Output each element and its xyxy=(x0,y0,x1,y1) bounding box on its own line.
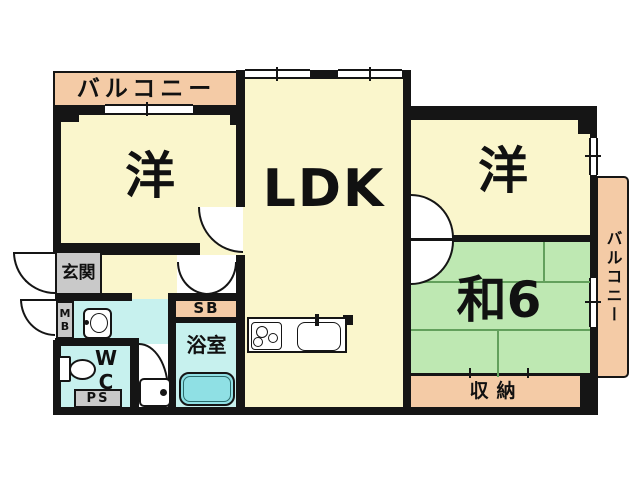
balcony-top-label: バルコニー xyxy=(77,78,217,101)
faucet-icon xyxy=(315,314,319,326)
window-tick xyxy=(146,102,148,116)
wall xyxy=(176,317,237,323)
wall xyxy=(53,407,598,415)
wall xyxy=(55,105,107,115)
toilet-label: WC xyxy=(92,345,120,395)
sliding-door-mark xyxy=(469,368,471,378)
sliding-door-mark xyxy=(527,368,529,378)
storage-label: 収納 xyxy=(411,378,582,404)
wall xyxy=(130,338,139,407)
balcony-right-label: バルコニー xyxy=(605,230,621,325)
bathroom-label: 浴室 xyxy=(176,331,237,359)
room-label-western-left: 洋 xyxy=(100,147,200,205)
wall xyxy=(236,255,245,407)
entrance-box: 玄関 xyxy=(55,251,102,295)
room-label-western-right: 洋 xyxy=(453,142,553,200)
meter-box: MB xyxy=(56,301,74,339)
room-ldk-floor xyxy=(236,70,411,415)
balcony-right: バルコニー xyxy=(596,176,629,378)
wall xyxy=(590,327,597,377)
kitchen-sink-icon xyxy=(297,322,341,351)
stove-burner-icon xyxy=(253,337,263,347)
wall xyxy=(403,70,411,415)
washbasin-faucet-icon xyxy=(84,320,89,325)
room-label-japanese: 和6 xyxy=(418,270,580,330)
stove-burner-icon xyxy=(268,333,278,343)
window-tick xyxy=(585,301,601,303)
entrance-door-arc xyxy=(13,252,55,294)
meter-box-label: MB xyxy=(60,307,71,333)
tatami-line xyxy=(497,331,499,377)
window-tick xyxy=(276,67,278,81)
window-tick xyxy=(369,67,371,81)
meterbox-door-arc xyxy=(20,299,55,336)
shoe-box-label: SB xyxy=(176,300,237,317)
washing-machine-drain-icon xyxy=(160,389,167,396)
wall xyxy=(411,106,597,120)
floorplan: バルコニー バルコニー xyxy=(0,0,640,480)
bathtub-inner-line xyxy=(183,376,231,402)
room-label-ldk: LDK xyxy=(243,158,405,220)
wall xyxy=(53,105,61,255)
washbasin-bowl-icon xyxy=(90,313,108,333)
wall xyxy=(590,173,597,280)
wall xyxy=(590,120,597,140)
window xyxy=(105,104,193,115)
entrance-label: 玄関 xyxy=(62,265,96,282)
wall xyxy=(580,373,598,415)
window-tick xyxy=(585,155,601,157)
